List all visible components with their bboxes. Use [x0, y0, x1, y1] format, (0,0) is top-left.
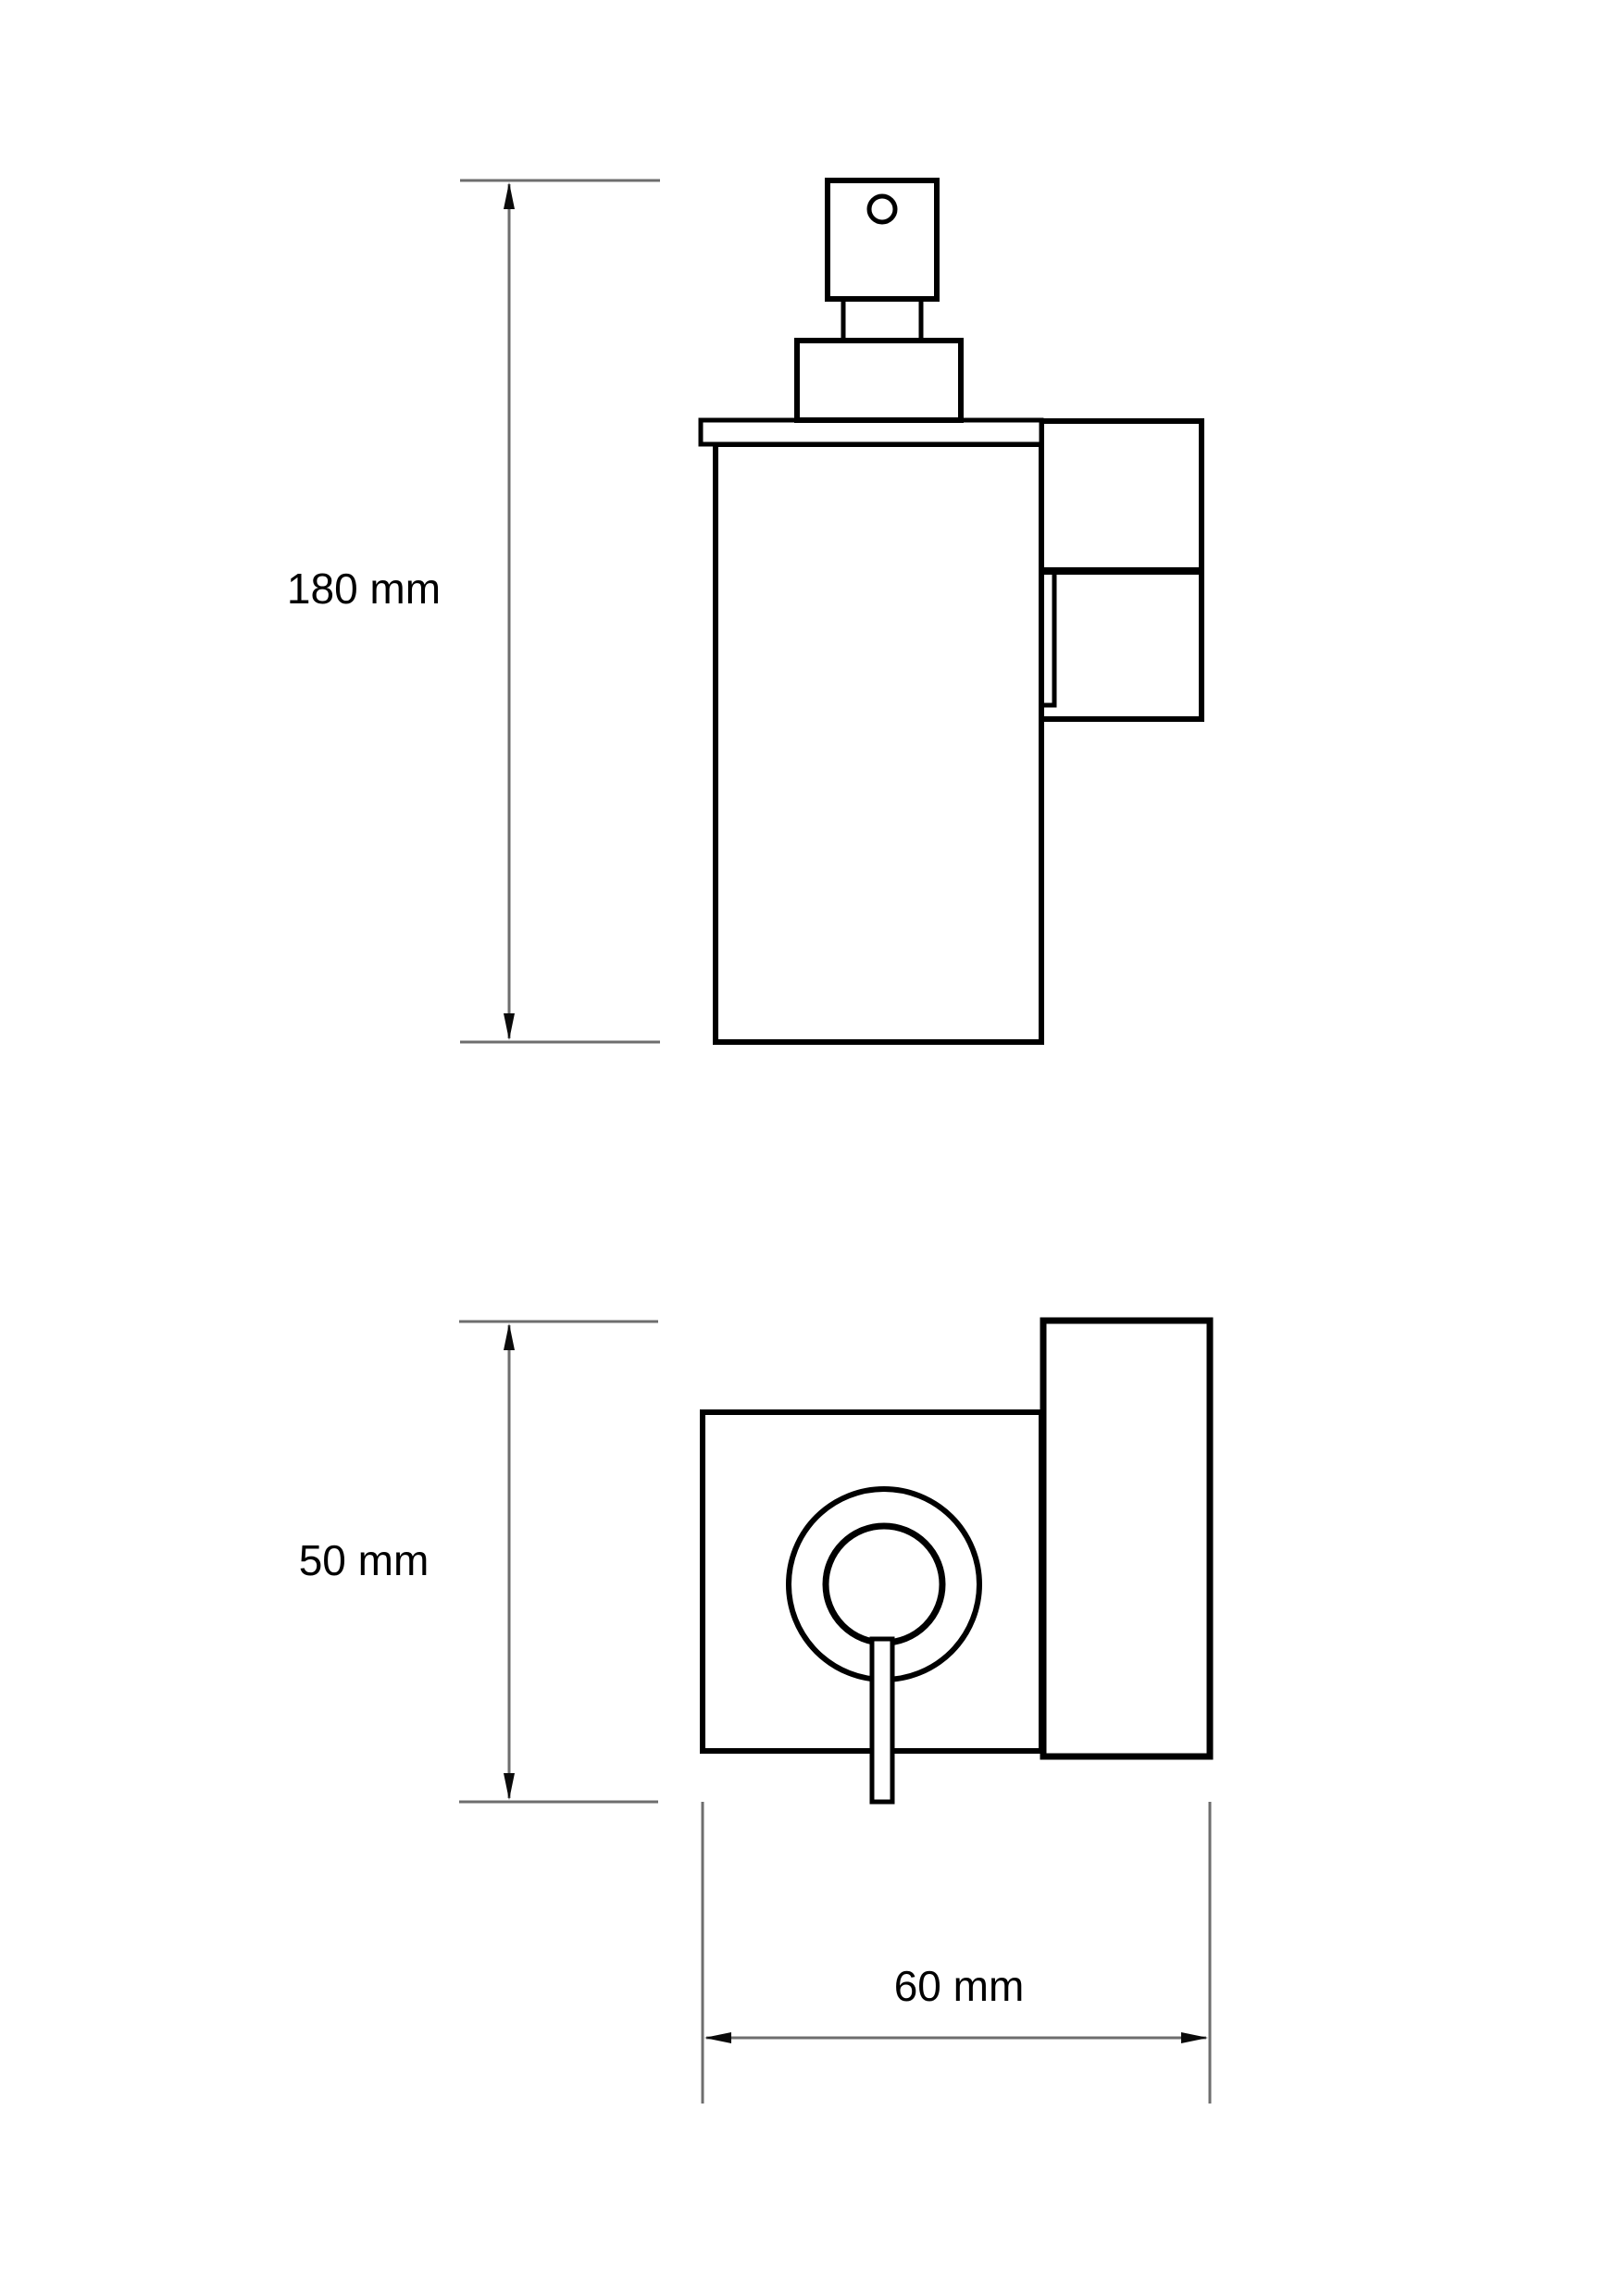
- dimension-height: 180 mm: [287, 180, 660, 1042]
- pump-handle-plan: [872, 1639, 892, 1802]
- pump-collar: [797, 341, 961, 420]
- arrowhead-down-icon: [504, 1773, 515, 1800]
- dispenser-body: [716, 444, 1041, 1042]
- wall-bracket-plan: [1043, 1321, 1210, 1756]
- arrowhead-down-icon: [504, 1013, 515, 1040]
- dispenser-lid: [701, 420, 1041, 444]
- arrowhead-right-icon: [1181, 2032, 1208, 2043]
- dimension-width: 60 mm: [703, 1802, 1210, 2104]
- dimension-depth: 50 mm: [299, 1322, 658, 1802]
- drawing-canvas: 180 mm 50 mm 60 mm: [0, 0, 1619, 2296]
- pump-neck: [843, 299, 921, 341]
- dimension-width-label: 60 mm: [894, 1962, 1025, 2010]
- arrowhead-up-icon: [504, 1323, 515, 1350]
- technical-drawing: 180 mm 50 mm 60 mm: [0, 0, 1619, 2296]
- side-view: [701, 180, 1202, 1042]
- plan-view: [703, 1321, 1210, 1802]
- arrowhead-left-icon: [704, 2032, 731, 2043]
- arrowhead-up-icon: [504, 182, 515, 209]
- dimension-height-label: 180 mm: [287, 565, 441, 613]
- dimension-depth-label: 50 mm: [299, 1536, 430, 1584]
